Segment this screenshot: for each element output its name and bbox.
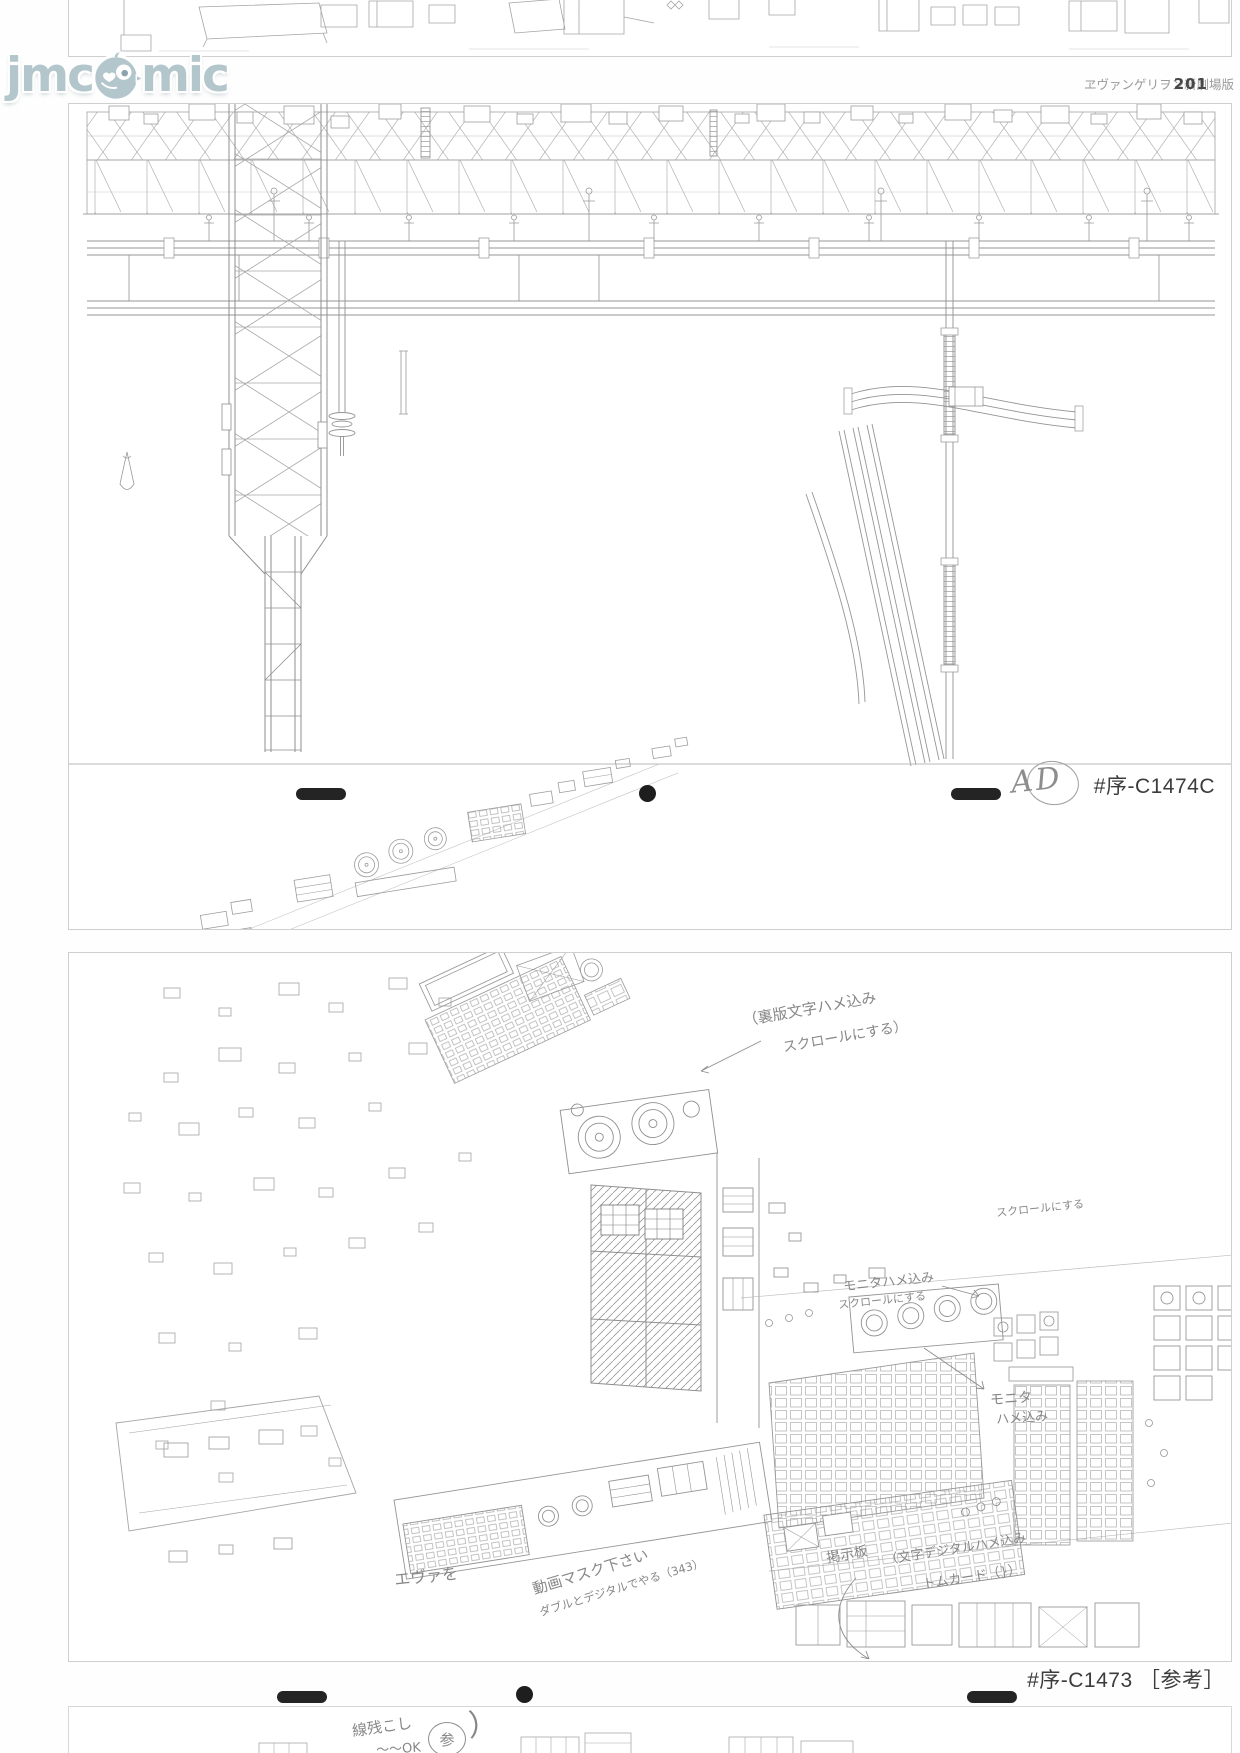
cut-number-label-c1474c: #序-C1474C [1094,770,1215,800]
handwritten-note: ） [467,1699,500,1745]
registration-bar-mark [967,1691,1017,1703]
site-watermark-logo: jmc mic [6,46,228,104]
page-number: 201 [1174,75,1208,93]
logo-text-prefix: jmc [6,48,93,103]
registration-bar-mark [296,788,346,800]
registration-dot-mark [516,1686,533,1703]
check-stamp: AD [1011,756,1085,816]
bird-mascot-icon [90,50,144,104]
layout-sheet-c1474c: AD #序-C1474C [68,103,1232,930]
layout-sheet-c1473 [68,952,1232,1662]
reference-tag: ［参考］ [1139,1669,1225,1692]
registration-bar-mark [951,788,1001,800]
registration-dot-mark [639,785,656,802]
circled-note-text: 参 [439,1729,454,1750]
cut-number: #序-C1473 [1027,1669,1133,1692]
circled-note: 参 [428,1722,466,1753]
next-sheet-sketch-strip [69,1707,1232,1753]
control-room-sketch [69,953,1232,1662]
top-strip-panel [68,0,1232,57]
artbook-scan-page: jmc mic ヱヴァンゲリヲン新劇場版 201 [0,0,1240,1753]
handwritten-note: 〜〜OK [375,1736,421,1753]
page-header: ヱヴァンゲリヲン新劇場版 201 [904,74,1234,96]
machinery-sketch-strip [69,0,1232,57]
cut-number-label-c1473: #序-C1473 ［参考］ [1027,1664,1225,1694]
registration-bar-mark [277,1691,327,1703]
stamp-initials: AD [1009,760,1064,800]
bottom-strip-panel [68,1706,1232,1753]
handwritten-note: ハメ込み [995,1405,1048,1428]
series-title: ヱヴァンゲリヲン新劇場版 [1084,77,1234,92]
logo-text-suffix: mic [141,48,228,103]
